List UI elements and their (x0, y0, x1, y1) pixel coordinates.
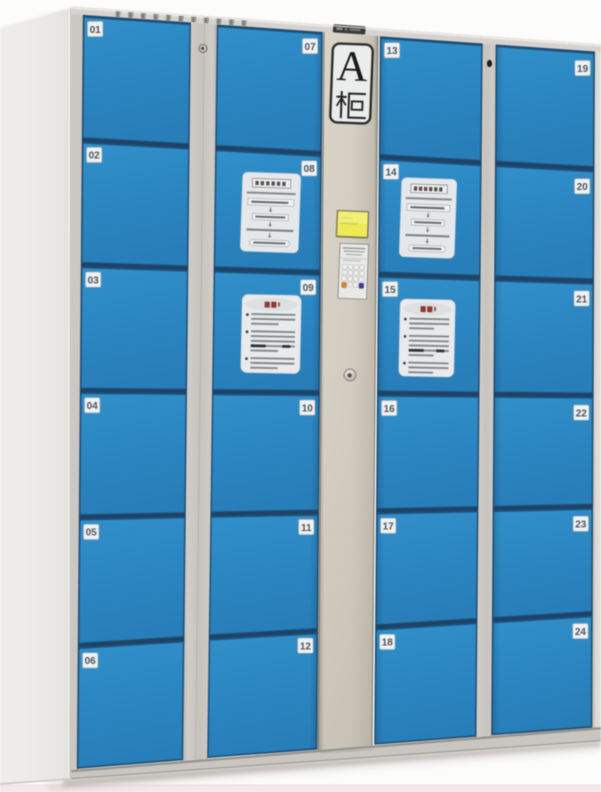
svg-text:19: 19 (577, 64, 589, 75)
svg-text:05: 05 (86, 528, 98, 539)
svg-text:08: 08 (304, 164, 316, 175)
svg-text:16: 16 (384, 404, 396, 415)
svg-text:24: 24 (575, 627, 587, 638)
svg-text:15: 15 (385, 285, 397, 296)
svg-text:21: 21 (576, 294, 588, 305)
svg-text:02: 02 (89, 151, 101, 162)
svg-text:13: 13 (386, 46, 398, 57)
svg-text:22: 22 (576, 408, 588, 419)
svg-text:17: 17 (383, 522, 395, 533)
svg-text:03: 03 (88, 275, 100, 286)
svg-text:11: 11 (301, 523, 312, 534)
svg-text:01: 01 (90, 25, 102, 36)
svg-text:04: 04 (87, 401, 99, 412)
svg-text:07: 07 (305, 42, 317, 53)
svg-text:A: A (336, 43, 369, 91)
svg-text:23: 23 (575, 520, 587, 531)
svg-text:14: 14 (385, 168, 397, 179)
svg-text:20: 20 (577, 182, 589, 193)
svg-text:06: 06 (85, 656, 97, 667)
svg-text:09: 09 (303, 283, 315, 294)
svg-text:18: 18 (382, 638, 394, 649)
svg-text:12: 12 (300, 641, 312, 652)
svg-text:10: 10 (302, 403, 314, 414)
